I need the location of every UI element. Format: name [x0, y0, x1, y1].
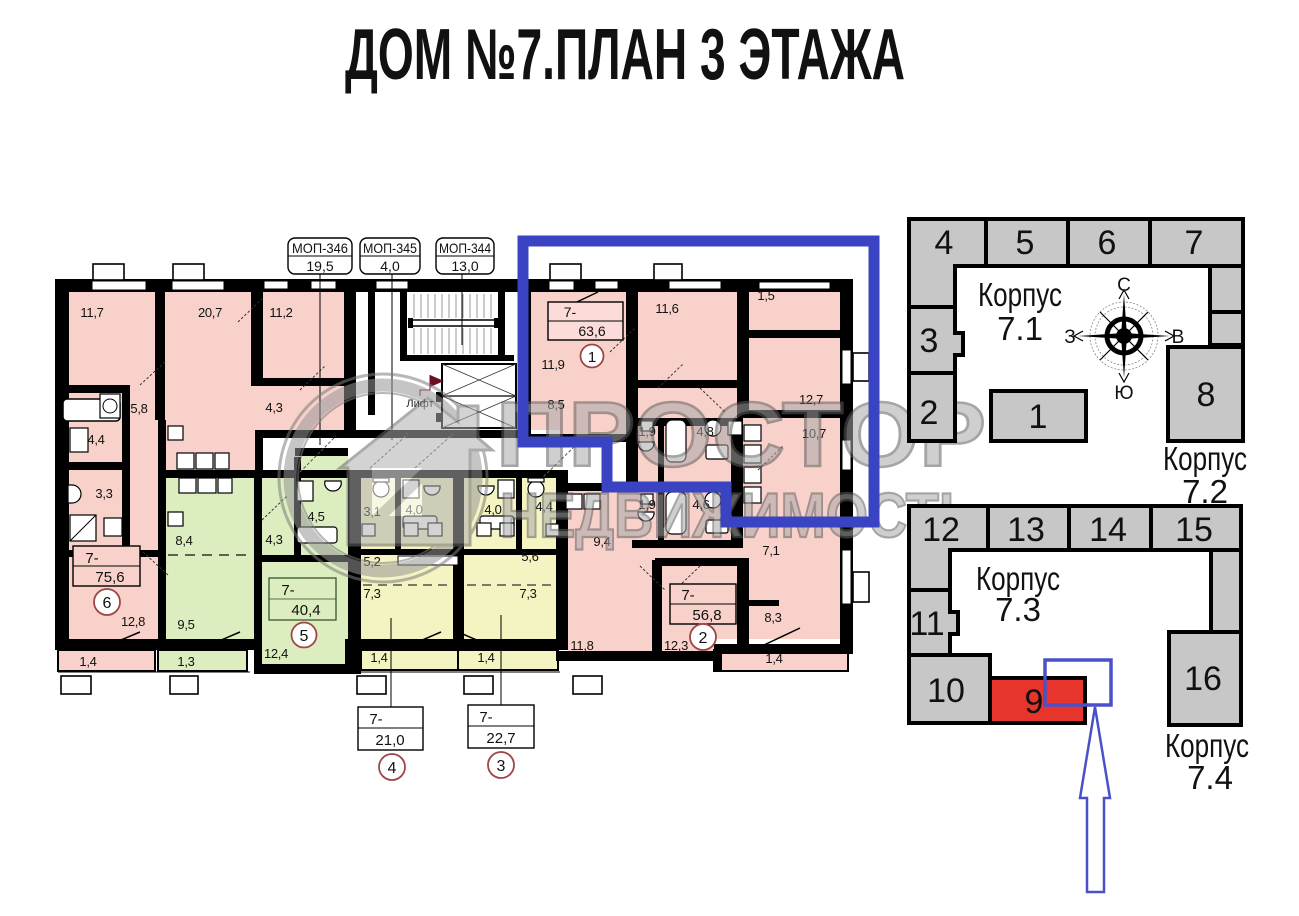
- svg-text:1,4: 1,4: [765, 651, 782, 666]
- svg-text:7-: 7-: [564, 304, 577, 320]
- svg-text:19,5: 19,5: [306, 258, 333, 274]
- svg-text:В: В: [1172, 327, 1185, 348]
- svg-text:12,8: 12,8: [121, 614, 145, 629]
- svg-text:12,3: 12,3: [664, 638, 688, 653]
- svg-text:7: 7: [1185, 224, 1204, 262]
- svg-text:НЕДВИЖИМОСТЬ: НЕДВИЖИМОСТЬ: [500, 481, 978, 551]
- svg-text:1: 1: [1029, 398, 1048, 436]
- svg-text:МОП-345: МОП-345: [363, 240, 417, 256]
- svg-text:7.4: 7.4: [1187, 759, 1233, 796]
- svg-text:3: 3: [920, 322, 939, 360]
- svg-text:4,3: 4,3: [265, 400, 282, 415]
- svg-text:Ю: Ю: [1114, 383, 1133, 404]
- svg-text:16: 16: [1184, 660, 1222, 698]
- svg-text:7.3: 7.3: [995, 591, 1041, 628]
- svg-text:5: 5: [1016, 224, 1035, 262]
- svg-text:3,3: 3,3: [95, 486, 112, 501]
- svg-text:7,3: 7,3: [519, 586, 536, 601]
- svg-text:14: 14: [1089, 511, 1127, 549]
- svg-text:6: 6: [1098, 224, 1117, 262]
- svg-text:МОП-344: МОП-344: [439, 240, 491, 256]
- svg-text:2: 2: [920, 394, 939, 432]
- svg-text:7-: 7-: [369, 711, 382, 728]
- svg-text:7-: 7-: [479, 709, 492, 726]
- svg-text:63,6: 63,6: [578, 323, 605, 339]
- svg-text:20,7: 20,7: [198, 305, 222, 320]
- svg-text:75,6: 75,6: [95, 569, 124, 586]
- svg-text:6: 6: [103, 595, 112, 612]
- svg-text:1,5: 1,5: [757, 288, 774, 303]
- svg-text:11,8: 11,8: [570, 638, 593, 653]
- svg-text:ДОМ №7.ПЛАН 3 ЭТАЖА: ДОМ №7.ПЛАН 3 ЭТАЖА: [345, 15, 905, 95]
- svg-text:4: 4: [935, 224, 954, 262]
- svg-text:13: 13: [1007, 511, 1045, 549]
- svg-text:13,0: 13,0: [451, 258, 478, 274]
- svg-text:7-: 7-: [681, 587, 694, 604]
- svg-text:12,4: 12,4: [264, 646, 288, 661]
- svg-text:1,4: 1,4: [477, 650, 494, 665]
- svg-text:9: 9: [1025, 683, 1044, 721]
- svg-text:Корпус: Корпус: [1163, 440, 1247, 477]
- svg-text:11,2: 11,2: [269, 305, 292, 320]
- svg-text:10: 10: [927, 672, 965, 710]
- svg-text:4,3: 4,3: [265, 532, 282, 547]
- svg-text:1: 1: [588, 349, 596, 366]
- svg-text:7-: 7-: [85, 550, 98, 567]
- svg-text:11,7: 11,7: [80, 305, 103, 320]
- svg-text:21,0: 21,0: [375, 732, 404, 749]
- svg-text:С: С: [1117, 275, 1131, 296]
- svg-text:12: 12: [922, 511, 960, 549]
- svg-text:5,6: 5,6: [521, 549, 538, 564]
- svg-text:9,5: 9,5: [177, 617, 194, 632]
- svg-text:11: 11: [909, 605, 944, 643]
- svg-text:3: 3: [497, 758, 506, 775]
- svg-text:4: 4: [388, 760, 397, 777]
- svg-text:5,8: 5,8: [130, 401, 147, 416]
- svg-text:7-: 7-: [281, 582, 294, 599]
- svg-text:22,7: 22,7: [486, 730, 515, 747]
- svg-text:З: З: [1064, 327, 1075, 348]
- svg-text:7,3: 7,3: [363, 586, 380, 601]
- svg-text:1,4: 1,4: [79, 654, 96, 669]
- svg-text:1,4: 1,4: [370, 650, 387, 665]
- svg-text:2: 2: [699, 630, 708, 647]
- svg-text:МОП-346: МОП-346: [292, 240, 348, 256]
- svg-text:1,3: 1,3: [177, 654, 194, 669]
- svg-text:4,4: 4,4: [87, 432, 104, 447]
- svg-text:4,0: 4,0: [380, 258, 400, 274]
- svg-text:11,6: 11,6: [655, 301, 678, 316]
- svg-text:15: 15: [1175, 511, 1213, 549]
- svg-text:8,4: 8,4: [175, 533, 192, 548]
- svg-text:56,8: 56,8: [692, 607, 721, 624]
- svg-text:5: 5: [300, 628, 309, 645]
- svg-text:8: 8: [1197, 376, 1216, 414]
- svg-text:11,9: 11,9: [541, 357, 564, 372]
- svg-text:40,4: 40,4: [291, 602, 320, 619]
- svg-text:7.1: 7.1: [997, 310, 1043, 347]
- svg-text:8,3: 8,3: [764, 610, 781, 625]
- svg-text:Корпус: Корпус: [978, 276, 1062, 313]
